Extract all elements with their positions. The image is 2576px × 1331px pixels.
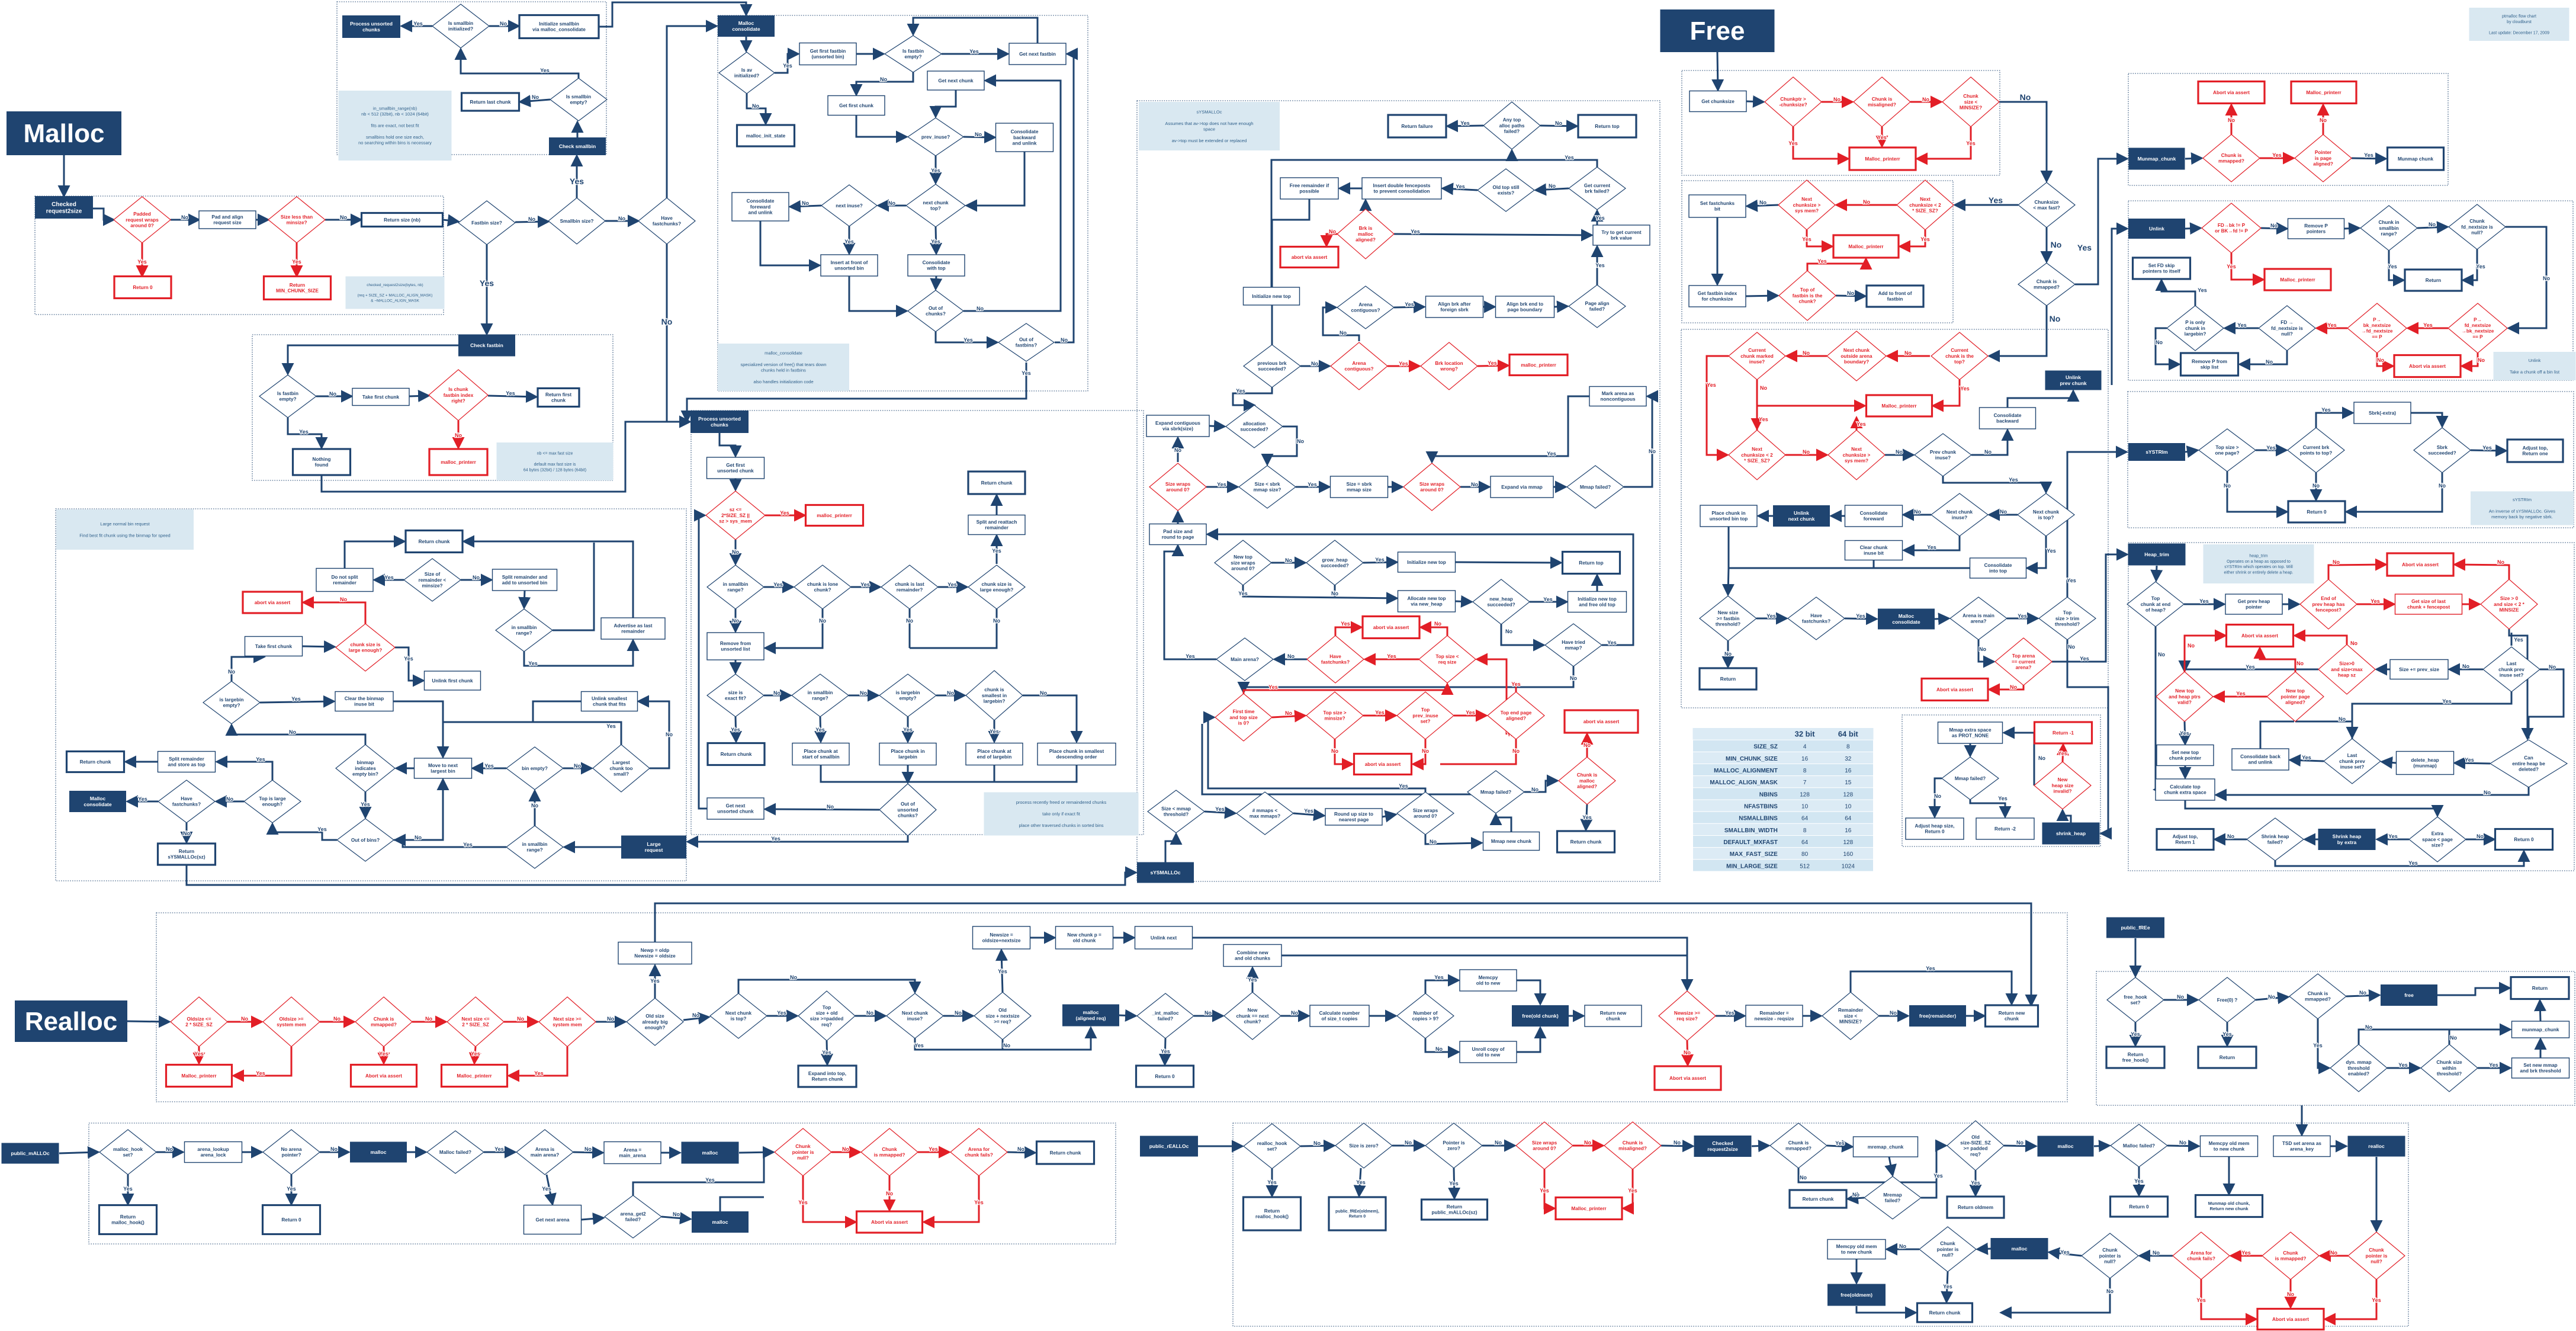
svg-text:Yes: Yes [2398, 1062, 2408, 1068]
svg-text:160: 160 [1843, 851, 1853, 858]
svg-text:Yes: Yes [2371, 598, 2380, 604]
svg-text:No: No [415, 835, 422, 841]
svg-text:Yes: Yes [1971, 1180, 1980, 1186]
svg-text:Free(0) ?: Free(0) ? [2217, 998, 2238, 1003]
svg-text:No: No [517, 1016, 524, 1022]
svg-text:Get first chunk: Get first chunk [839, 103, 873, 108]
svg-text:Yes: Yes [2476, 264, 2485, 270]
svg-text:Yes: Yes [2241, 1250, 2251, 1256]
svg-text:Size wrapsaround 0?: Size wrapsaround 0? [1532, 1140, 1557, 1152]
svg-text:Place chunk atstart of smallbi: Place chunk atstart of smallbin [802, 749, 839, 760]
svg-text:Get first fastbin(unsorted bin: Get first fastbin(unsorted bin) [810, 49, 846, 60]
svg-text:Yes: Yes [1802, 236, 1811, 242]
svg-text:Yes: Yes [494, 1146, 504, 1152]
svg-text:Yes: Yes [138, 796, 147, 802]
svg-text:512: 512 [1800, 863, 1810, 870]
svg-text:Memcpy old memto new chunk: Memcpy old memto new chunk [1836, 1244, 1877, 1255]
svg-text:Yes: Yes [2313, 1043, 2323, 1048]
svg-text:128: 128 [1843, 839, 1853, 846]
svg-text:16: 16 [1845, 828, 1852, 834]
svg-text:No: No [1422, 748, 1429, 754]
svg-text:No: No [2320, 117, 2327, 123]
svg-text:No: No [2350, 640, 2357, 646]
svg-text:Check smallbin: Check smallbin [559, 143, 596, 149]
svg-text:Yes: Yes [1595, 215, 1605, 221]
svg-text:Yes: Yes [650, 978, 660, 984]
svg-text:No: No [993, 618, 1000, 624]
svg-text:Return: Return [2220, 1055, 2235, 1060]
svg-text:Yes: Yes [731, 727, 740, 733]
svg-text:Yes: Yes [2408, 860, 2418, 866]
svg-text:Yes: Yes [2372, 1297, 2381, 1303]
svg-text:Yes: Yes [317, 826, 327, 832]
svg-text:Mmap extra spaceas PROT_NONE: Mmap extra spaceas PROT_NONE [1949, 727, 1992, 739]
svg-text:abort via assert: abort via assert [1373, 625, 1409, 630]
svg-text:Size wrapsaround 0?: Size wrapsaround 0? [1165, 482, 1191, 493]
svg-text:Pointeris pagealigned?: Pointeris pagealigned? [2313, 150, 2333, 166]
svg-text:Yes: Yes [822, 1050, 831, 1056]
svg-text:Oldsize >=system mem: Oldsize >=system mem [277, 1016, 306, 1028]
svg-text:Adjust top,Return one: Adjust top,Return one [2522, 445, 2548, 457]
svg-text:No: No [455, 432, 462, 438]
svg-text:MIN_LARGE_SIZE: MIN_LARGE_SIZE [1726, 863, 1778, 870]
svg-text:Yes: Yes [2482, 445, 2492, 451]
svg-text:No: No [1287, 653, 1295, 659]
svg-text:No: No [1760, 385, 1767, 391]
svg-text:abort via assert: abort via assert [1365, 762, 1401, 767]
svg-text:chunk issmallest inlargebin?: chunk issmallest inlargebin? [982, 687, 1007, 704]
svg-text:No: No [1890, 1010, 1897, 1016]
svg-text:Yes: Yes [2327, 322, 2337, 328]
svg-text:Yes: Yes [137, 259, 147, 265]
svg-text:Yes: Yes [992, 548, 1001, 554]
svg-text:Abort via assert: Abort via assert [871, 1220, 908, 1225]
svg-text:Yes: Yes [844, 239, 854, 245]
svg-text:No: No [1934, 793, 1941, 799]
svg-text:Size is zero?: Size is zero? [1349, 1143, 1379, 1149]
svg-text:No: No [732, 549, 739, 555]
svg-text:Yes: Yes [1022, 370, 1031, 376]
svg-text:Chunk ismmapped?: Chunk ismmapped? [2034, 279, 2060, 290]
svg-text:Abort via assert: Abort via assert [1669, 1076, 1706, 1081]
svg-text:No: No [752, 103, 759, 109]
svg-text:Yes: Yes [705, 1177, 715, 1183]
svg-text:Abort via assert: Abort via assert [2272, 1317, 2309, 1322]
svg-text:Yes: Yes [480, 278, 494, 288]
svg-text:Yes: Yes [798, 1199, 808, 1205]
svg-text:mremap_chunk: mremap_chunk [1868, 1144, 1904, 1150]
svg-text:No: No [2429, 222, 2436, 227]
svg-text:Yes: Yes [990, 729, 999, 735]
svg-text:No: No [532, 94, 539, 100]
svg-text:Get fastbin indexfor chunksize: Get fastbin indexfor chunksize [1698, 291, 1737, 302]
svg-text:Yes: Yes [1920, 236, 1930, 242]
svg-text:No: No [1340, 330, 1347, 336]
svg-text:Remove fromunsorted list: Remove fromunsorted list [720, 641, 751, 652]
svg-text:Yes: Yes [1511, 681, 1521, 687]
svg-text:Yes: Yes [1926, 966, 1935, 971]
svg-text:No: No [2227, 833, 2234, 839]
svg-text:Yes: Yes [1248, 977, 1257, 983]
svg-text:No: No [2549, 664, 2556, 670]
svg-text:Yes: Yes [2302, 755, 2311, 761]
svg-text:No: No [906, 618, 913, 624]
svg-text:Yes: Yes [771, 836, 780, 842]
svg-text:No: No [1555, 120, 1562, 126]
svg-text:Yes: Yes [534, 1070, 544, 1076]
svg-text:chunk size islarge enough?: chunk size islarge enough? [980, 582, 1013, 593]
svg-text:Yes: Yes [1411, 229, 1420, 235]
svg-text:Yes: Yes [1582, 814, 1592, 820]
svg-text:No: No [183, 830, 190, 836]
svg-text:public_rEALLOc: public_rEALLOc [1149, 1143, 1189, 1149]
svg-text:No: No [2158, 652, 2165, 658]
svg-text:No: No [1649, 448, 1656, 454]
svg-text:Consolidateforeward: Consolidateforeward [1860, 511, 1888, 522]
svg-text:No: No [2268, 994, 2275, 1000]
svg-text:Chunk ismmapped?: Chunk ismmapped? [371, 1016, 397, 1028]
svg-text:No: No [1584, 1140, 1591, 1146]
svg-text:Next chunkoutside arenaboundar: Next chunkoutside arenaboundary? [1841, 348, 1872, 364]
svg-text:No: No [1297, 438, 1304, 444]
svg-text:No: No [1003, 1043, 1010, 1048]
svg-text:Yes: Yes [1759, 416, 1768, 422]
svg-text:Size < sbrkmmap size?: Size < sbrkmmap size? [1254, 482, 1281, 493]
svg-text:No: No [241, 1016, 248, 1022]
svg-text:No: No [607, 1016, 614, 1022]
svg-text:Yes: Yes [2131, 1031, 2140, 1037]
svg-text:Insert double fencepoststo pre: Insert double fencepoststo prevent conso… [1373, 183, 1431, 194]
svg-text:Yes: Yes [256, 1070, 265, 1076]
svg-text:Yes: Yes [2227, 264, 2236, 270]
svg-text:MIN_CHUNK_SIZE: MIN_CHUNK_SIZE [1726, 756, 1778, 762]
svg-text:Top size >one page?: Top size >one page? [2215, 445, 2240, 456]
svg-text:shrink_heap: shrink_heap [2056, 830, 2086, 836]
svg-text:Return 0: Return 0 [2514, 837, 2534, 842]
svg-text:prev_inuse?: prev_inuse? [921, 134, 950, 140]
svg-text:Align brk end topage boundary: Align brk end topage boundary [1507, 302, 1543, 313]
svg-text:Calculate numberof size_t copi: Calculate numberof size_t copies [1319, 1011, 1361, 1022]
svg-text:munmap_chunk: munmap_chunk [2522, 1027, 2559, 1032]
svg-text:Abort via assert: Abort via assert [2402, 562, 2439, 567]
svg-text:No: No [1803, 350, 1810, 356]
svg-text:Yes: Yes [1856, 421, 1866, 427]
svg-text:No: No [333, 1016, 341, 1022]
svg-text:Free: Free [1690, 17, 1745, 46]
svg-text:Take first chunk: Take first chunk [362, 395, 400, 400]
svg-text:No: No [1405, 1140, 1412, 1146]
svg-text:Yes: Yes [2442, 698, 2452, 704]
svg-text:Return oldmem: Return oldmem [1958, 1205, 1993, 1210]
svg-text:No: No [228, 669, 235, 675]
svg-text:Return chunk: Return chunk [1570, 839, 1602, 845]
svg-text:No: No [2188, 643, 2195, 649]
svg-text:FD→bk != Por BK→fd != P: FD→bk != Por BK→fd != P [2215, 223, 2248, 234]
svg-text:Return chunk: Return chunk [1050, 1150, 1081, 1156]
svg-text:Place chunk atend of largebin: Place chunk atend of largebin [977, 749, 1012, 760]
svg-text:No: No [2330, 1250, 2337, 1256]
svg-text:Mremapfailed?: Mremapfailed? [1883, 1192, 1902, 1204]
svg-text:No: No [2068, 644, 2075, 650]
svg-text:Align brk afterforeign sbrk: Align brk afterforeign sbrk [1438, 302, 1471, 313]
svg-text:Yes: Yes [2266, 445, 2276, 451]
svg-text:No: No [618, 216, 625, 222]
svg-text:Yes: Yes [463, 842, 473, 848]
svg-text:No: No [2477, 833, 2484, 839]
svg-text:chunk is lastremainder?: chunk is lastremainder? [895, 582, 924, 593]
svg-text:No: No [2365, 1024, 2372, 1030]
svg-text:Chunk ismmapped?: Chunk ismmapped? [2305, 991, 2331, 1002]
svg-text:No: No [1505, 628, 1512, 634]
svg-text:Check fastbin: Check fastbin [470, 342, 503, 348]
svg-text:Yes: Yes [2018, 613, 2027, 619]
svg-text:No: No [2010, 684, 2017, 690]
svg-text:Return 0: Return 0 [2307, 509, 2327, 515]
svg-text:No: No [975, 132, 982, 137]
svg-text:NSMALLBINS: NSMALLBINS [1739, 816, 1778, 822]
svg-text:Oldsize <=2 * SIZE_SZ: Oldsize <=2 * SIZE_SZ [185, 1016, 213, 1028]
svg-text:No: No [473, 575, 480, 580]
svg-text:No: No [2156, 339, 2163, 345]
svg-text:free(old chunk): free(old chunk) [1522, 1013, 1559, 1019]
svg-text:No: No [1205, 1010, 1212, 1016]
svg-text:Mark arena asnoncontiguous: Mark arena asnoncontiguous [1600, 391, 1636, 402]
svg-text:Yes: Yes [1607, 640, 1617, 646]
svg-text:32: 32 [1845, 756, 1852, 762]
svg-text:No: No [1922, 97, 1929, 102]
svg-text:No: No [1313, 1140, 1321, 1146]
svg-text:MAX_FAST_SIZE: MAX_FAST_SIZE [1730, 851, 1778, 858]
svg-text:Return chunk: Return chunk [80, 759, 111, 765]
svg-text:NFASTBINS: NFASTBINS [1744, 804, 1778, 810]
svg-text:Top is largeenough?: Top is largeenough? [259, 796, 286, 807]
svg-text:Yes: Yes [1933, 1173, 1943, 1179]
svg-text:allocationsucceeded?: allocationsucceeded? [1240, 421, 1268, 432]
svg-text:Move to nextlargest bin: Move to nextlargest bin [428, 763, 458, 774]
svg-text:Yes: Yes [2198, 287, 2207, 293]
svg-text:Get chunksize: Get chunksize [1701, 99, 1735, 104]
svg-text:No: No [1331, 748, 1338, 754]
svg-text:Size += prev_size: Size += prev_size [2399, 667, 2439, 672]
svg-text:Yes: Yes [379, 1051, 388, 1057]
svg-text:Malloc_printerr: Malloc_printerr [1848, 244, 1884, 249]
svg-text:Yes: Yes [2067, 578, 2076, 583]
svg-text:Yes: Yes [292, 259, 301, 265]
svg-text:No: No [2439, 483, 2446, 489]
svg-text:Return failure: Return failure [1401, 124, 1433, 129]
svg-text:malloc: malloc [712, 1219, 728, 1225]
svg-text:No: No [1531, 787, 1538, 793]
svg-text:No arenapointer?: No arenapointer? [281, 1147, 301, 1158]
svg-text:128: 128 [1800, 791, 1810, 798]
svg-text:Yes: Yes [1565, 155, 1574, 161]
svg-text:16: 16 [1801, 756, 1809, 762]
svg-text:Next size <=2 * SIZE_SZ: Next size <=2 * SIZE_SZ [461, 1016, 490, 1028]
svg-text:Yes: Yes [2222, 1031, 2232, 1037]
svg-text:Top size <req size: Top size <req size [1435, 654, 1459, 665]
svg-text:No: No [1495, 1140, 1502, 1146]
svg-text:7: 7 [1803, 780, 1807, 786]
svg-text:NBINS: NBINS [1759, 791, 1778, 798]
svg-text:Munmap old chunk,Return new ch: Munmap old chunk,Return new chunk [2208, 1201, 2250, 1211]
svg-text:No: No [1979, 646, 1986, 652]
svg-text:Adjust top,Return 1: Adjust top,Return 1 [2173, 834, 2198, 845]
svg-text:Size = sbrkmmap size: Size = sbrkmmap size [1346, 482, 1371, 493]
svg-text:4: 4 [1803, 744, 1807, 751]
svg-text:No: No [2153, 1250, 2160, 1256]
svg-text:Yes: Yes [123, 1186, 133, 1192]
svg-text:No: No [2543, 275, 2550, 281]
svg-text:No: No [2266, 359, 2273, 365]
svg-text:Yes: Yes [1817, 258, 1827, 264]
svg-text:Yes: Yes [194, 1051, 204, 1057]
svg-text:No: No [955, 1010, 962, 1016]
svg-text:Nothingfound: Nothingfound [313, 457, 331, 468]
svg-text:Yes: Yes [1268, 684, 1278, 690]
svg-text:Yes: Yes [1161, 1048, 1170, 1054]
svg-text:Abort via assert: Abort via assert [1936, 687, 1973, 692]
svg-text:Heap_trim: Heap_trim [2144, 551, 2169, 557]
svg-text:Chunk ismmapped?: Chunk ismmapped? [1785, 1140, 1811, 1152]
svg-text:Yes: Yes [506, 390, 515, 396]
svg-text:Yes: Yes [291, 696, 301, 702]
svg-text:No: No [2312, 483, 2320, 489]
svg-text:Arena forchunk fails?: Arena forchunk fails? [2187, 1250, 2215, 1262]
svg-text:Yes: Yes [903, 727, 913, 733]
svg-text:Yes: Yes [1966, 140, 1976, 146]
svg-text:No: No [1017, 1146, 1024, 1152]
svg-text:malloc_init_state: malloc_init_state [746, 133, 786, 139]
svg-text:Yes: Yes [783, 63, 792, 69]
svg-text:Yes: Yes [1460, 120, 1470, 126]
svg-text:No: No [661, 317, 673, 326]
svg-text:No: No [888, 200, 895, 206]
svg-text:No: No [2016, 1140, 2023, 1146]
svg-text:Split remainderand store as to: Split remainderand store as top [168, 756, 205, 768]
svg-text:New size>= fastbinthreshold?: New size>= fastbinthreshold? [1716, 610, 1740, 627]
svg-text:Yes: Yes [2514, 637, 2523, 643]
svg-text:64 bit: 64 bit [1838, 730, 1859, 739]
svg-text:Combine newand old chunks: Combine newand old chunks [1235, 950, 1270, 961]
svg-text:No: No [584, 1146, 592, 1152]
svg-text:Chunk ismallocaligned?: Chunk ismallocaligned? [1577, 772, 1598, 789]
svg-text:malloc: malloc [371, 1149, 387, 1155]
svg-text:Main arena?: Main arena? [1231, 657, 1259, 662]
svg-text:Yes: Yes [1927, 544, 1936, 550]
svg-text:Return 0: Return 0 [1155, 1074, 1175, 1079]
svg-text:10: 10 [1845, 804, 1852, 810]
svg-text:Yes: Yes [570, 177, 584, 186]
svg-text:realloc: realloc [2368, 1143, 2385, 1149]
svg-text:MALLOC_ALIGN_MASK: MALLOC_ALIGN_MASK [1710, 780, 1778, 786]
svg-text:Malloc_printerr: Malloc_printerr [2306, 90, 2341, 95]
svg-text:malloc_printerr: malloc_printerr [817, 513, 852, 518]
svg-text:Expand via mmap: Expand via mmap [1501, 485, 1543, 490]
svg-text:No: No [1896, 449, 1903, 455]
svg-text:No: No [2359, 990, 2366, 996]
svg-text:No: No [226, 796, 233, 802]
svg-text:Yes: Yes [998, 968, 1007, 974]
svg-text:Malloc_printerr: Malloc_printerr [1571, 1206, 1607, 1211]
svg-text:next inuse?: next inuse? [836, 203, 863, 209]
svg-text:16: 16 [1845, 768, 1852, 774]
svg-text:Initialize new top: Initialize new top [1252, 294, 1291, 299]
svg-text:No: No [2484, 790, 2491, 796]
svg-text:Yes: Yes [1856, 613, 1865, 619]
svg-text:No: No [732, 618, 739, 624]
svg-text:No: No [802, 200, 809, 206]
svg-text:No: No [1311, 361, 1318, 367]
svg-text:No: No [1434, 621, 1441, 627]
svg-text:Insert at front ofunsorted bin: Insert at front ofunsorted bin [831, 260, 868, 271]
svg-text:No: No [2177, 994, 2184, 1000]
svg-text:Abort via assert: Abort via assert [365, 1073, 402, 1079]
svg-text:Yes: Yes [2246, 664, 2255, 670]
svg-text:No: No [1684, 1050, 1691, 1056]
svg-text:Current brkpoints to top?: Current brkpoints to top? [2300, 445, 2333, 456]
svg-text:arena_lookuparena_lock: arena_lookuparena_lock [197, 1147, 229, 1158]
svg-text:Yes: Yes [974, 1199, 984, 1205]
svg-text:malloc_printerr: malloc_printerr [1521, 363, 1556, 368]
svg-text:Yes: Yes [860, 582, 870, 588]
svg-text:Initialize new topand free old: Initialize new topand free old top [1578, 596, 1617, 608]
svg-text:Yes: Yes [2388, 833, 2398, 839]
svg-text:SIZE_SZ: SIZE_SZ [1753, 744, 1778, 751]
svg-text:Newsize >=req size?: Newsize >=req size? [1674, 1011, 1700, 1022]
svg-text:Initialize new top: Initialize new top [1407, 560, 1446, 565]
svg-text:No: No [860, 690, 867, 696]
svg-text:Old sizealready bigenough?: Old sizealready bigenough? [642, 1014, 667, 1030]
svg-text:Yes: Yes [2364, 152, 2373, 158]
svg-text:Mmap new chunk: Mmap new chunk [1491, 839, 1532, 844]
svg-text:Unlink next: Unlink next [1151, 935, 1177, 941]
svg-text:Expand into top,Return chunk: Expand into top,Return chunk [808, 1071, 846, 1082]
svg-text:Is fastbinempty?: Is fastbinempty? [277, 391, 298, 402]
svg-text:No: No [866, 1010, 873, 1016]
svg-text:Set new topchunk pointer: Set new topchunk pointer [2169, 750, 2202, 761]
svg-text:No: No [531, 803, 538, 809]
svg-text:Yes: Yes [1405, 302, 1414, 307]
svg-text:Malloc_printerr: Malloc_printerr [2280, 277, 2315, 283]
svg-text:Get next fastbin: Get next fastbin [1019, 52, 1056, 57]
svg-text:Chunk ismisaligned?: Chunk ismisaligned? [1618, 1140, 1647, 1152]
svg-text:Chunkptr >-chunksize?: Chunkptr >-chunksize? [1779, 97, 1807, 108]
svg-text:Sbrk(-extra): Sbrk(-extra) [2369, 410, 2396, 416]
svg-text:No: No [1674, 1140, 1681, 1146]
svg-text:No: No [1570, 675, 1577, 681]
svg-text:Chunk ismmapped?: Chunk ismmapped? [2218, 153, 2244, 164]
svg-text:Malloc_printerr: Malloc_printerr [181, 1073, 217, 1079]
svg-text:No: No [1904, 350, 1912, 356]
svg-text:new_heapsucceeded?: new_heapsucceeded? [1487, 596, 1515, 608]
svg-text:Return chunk: Return chunk [1803, 1197, 1834, 1202]
svg-text:1024: 1024 [1842, 863, 1855, 870]
svg-text:Out ofchunks?: Out ofchunks? [926, 306, 946, 317]
svg-text:Yes: Yes [606, 723, 616, 729]
svg-text:Yes: Yes [931, 168, 940, 174]
svg-text:Yes: Yes [1456, 184, 1465, 190]
svg-text:Malloc: Malloc [24, 119, 105, 148]
svg-text:No: No [1847, 290, 1854, 296]
svg-text:Consolidateforewardand unlink: Consolidateforewardand unlink [747, 198, 775, 215]
svg-text:No: No [1291, 1010, 1298, 1016]
svg-text:Allocate new topvia new_heap: Allocate new topvia new_heap [1407, 596, 1446, 607]
svg-text:Fastbin size?: Fastbin size? [471, 220, 502, 226]
svg-text:80: 80 [1801, 851, 1809, 858]
svg-text:Yes: Yes [2237, 322, 2247, 328]
svg-text:Calculate topchunk extra space: Calculate topchunk extra space [2164, 784, 2206, 796]
svg-text:Yes: Yes [471, 1051, 480, 1057]
